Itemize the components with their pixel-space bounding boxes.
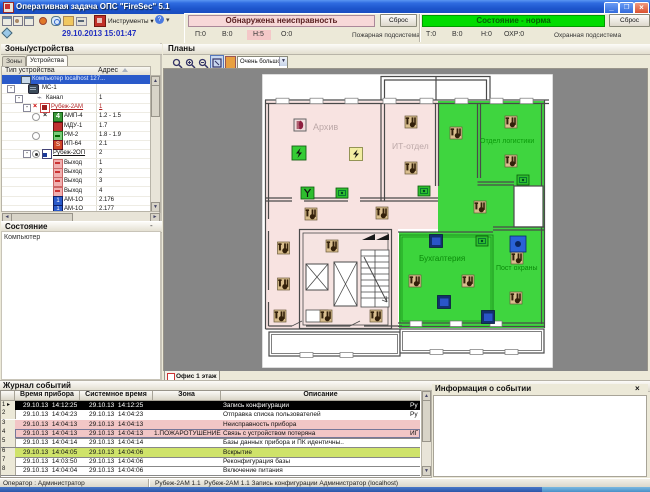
svg-text:Пост охраны: Пост охраны xyxy=(496,265,538,272)
svg-text:Архив: Архив xyxy=(313,122,338,132)
svg-text:ИТ-отдел: ИТ-отдел xyxy=(392,141,429,151)
svg-text:Бухгалтерия: Бухгалтерия xyxy=(419,254,465,263)
svg-text:Отдел логистики: Отдел логистики xyxy=(480,138,534,145)
